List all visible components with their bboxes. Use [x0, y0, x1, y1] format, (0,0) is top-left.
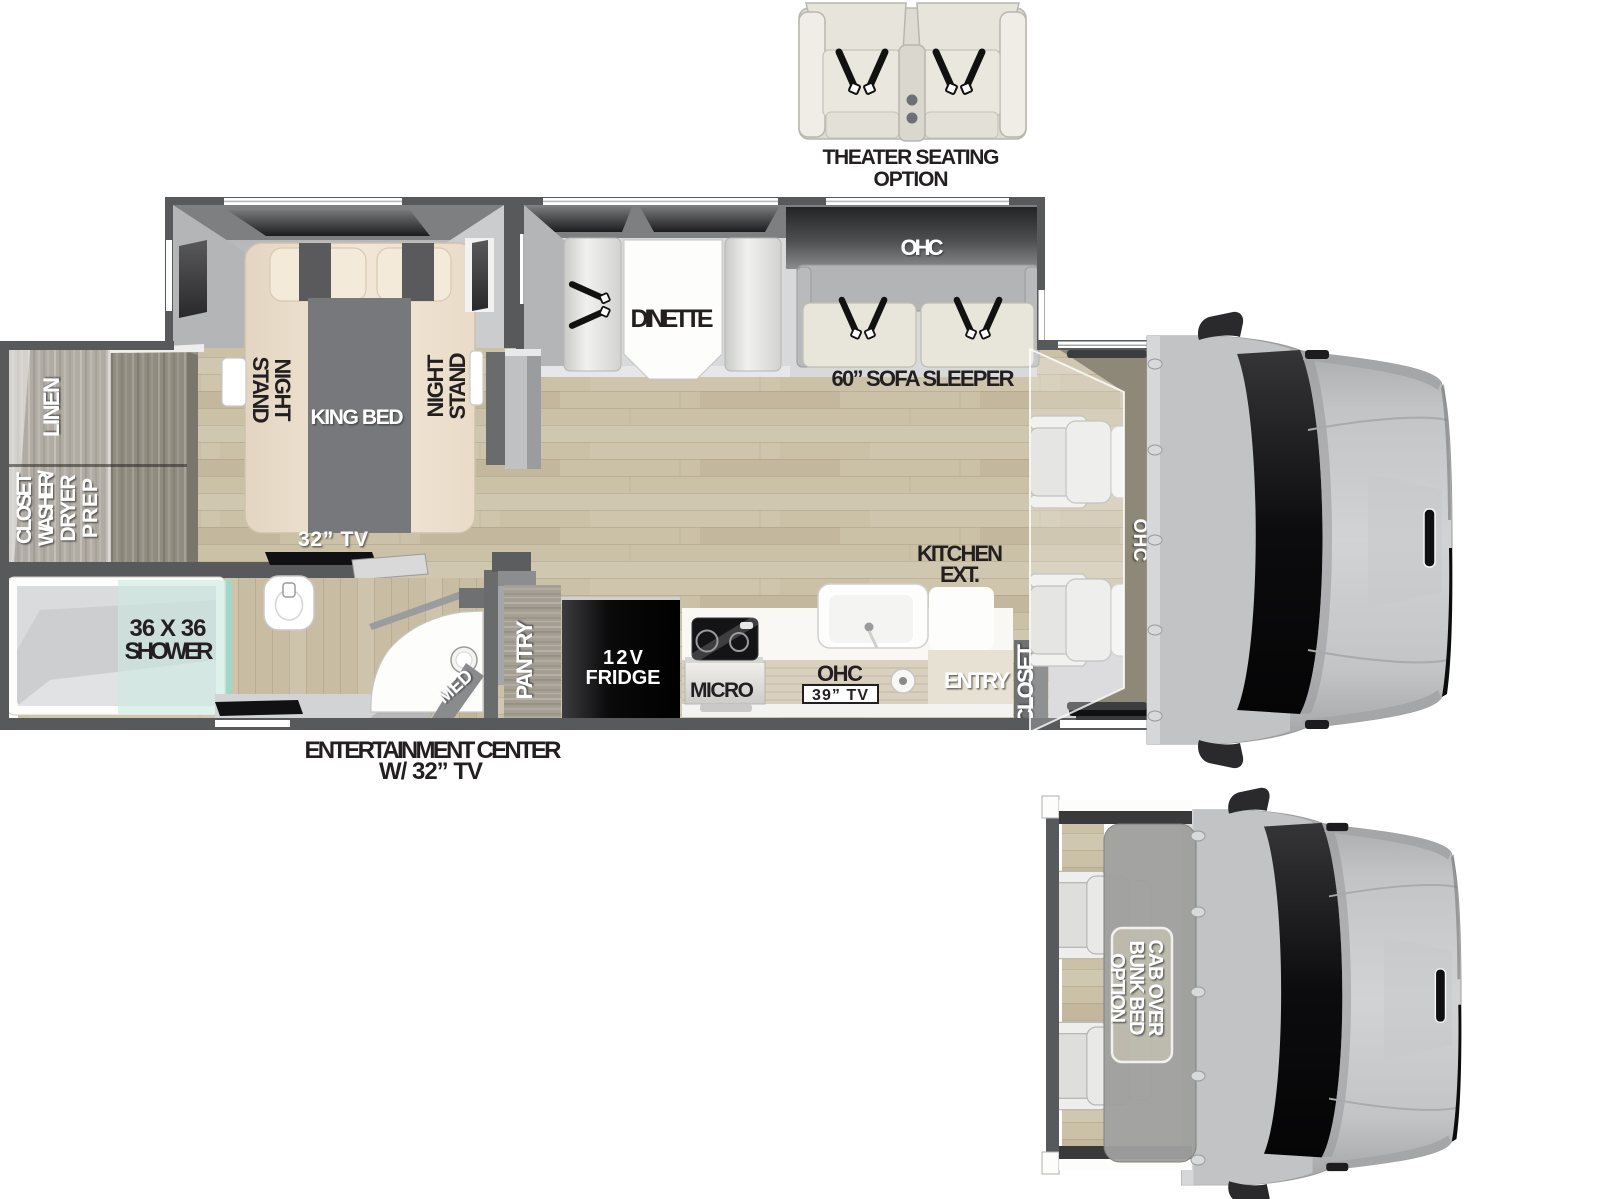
svg-text:THEATER SEATING: THEATER SEATING	[823, 146, 1000, 169]
svg-text:MICRO: MICRO	[690, 679, 754, 702]
svg-text:W/ 32” TV: W/ 32” TV	[379, 758, 483, 785]
svg-text:OPTION: OPTION	[874, 168, 949, 191]
svg-text:PREP: PREP	[79, 478, 102, 538]
svg-text:32” TV: 32” TV	[298, 528, 368, 551]
svg-text:OHC: OHC	[817, 661, 863, 686]
svg-text:OHC: OHC	[901, 235, 944, 260]
svg-text:39” TV: 39” TV	[812, 687, 868, 704]
svg-text:SHOWER: SHOWER	[125, 638, 214, 665]
svg-text:OPTION: OPTION	[1106, 953, 1128, 1023]
svg-text:EXT.: EXT.	[940, 562, 980, 587]
svg-text:12V: 12V	[603, 647, 644, 669]
svg-text:DRYER: DRYER	[57, 475, 80, 542]
svg-text:WASHER/: WASHER/	[35, 470, 58, 546]
svg-text:STAND: STAND	[445, 353, 470, 420]
svg-text:KING BED: KING BED	[311, 406, 404, 429]
svg-text:PANTRY: PANTRY	[512, 620, 537, 699]
svg-text:LINEN: LINEN	[39, 377, 64, 437]
svg-text:FRIDGE: FRIDGE	[586, 667, 661, 689]
svg-text:DINETTE: DINETTE	[631, 305, 714, 333]
svg-text:60” SOFA SLEEPER: 60” SOFA SLEEPER	[832, 366, 1015, 391]
svg-text:STAND: STAND	[248, 357, 273, 424]
svg-text:CLOSET: CLOSET	[13, 472, 36, 544]
svg-text:ENTRY: ENTRY	[944, 668, 1010, 693]
